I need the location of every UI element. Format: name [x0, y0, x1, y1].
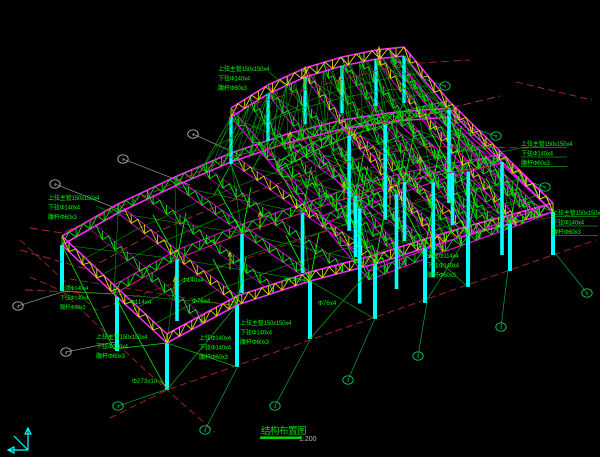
svg-text:下弦Φ140x4: 下弦Φ140x4 [552, 219, 585, 227]
svg-text:下弦Φ140x4: 下弦Φ140x4 [240, 329, 273, 337]
svg-text:下弦Φ140x4: 下弦Φ140x4 [521, 150, 554, 158]
svg-text:Φ114x4: Φ114x4 [130, 299, 152, 306]
svg-text:Φ140x4: Φ140x4 [182, 277, 204, 284]
svg-text:Φ76x4: Φ76x4 [318, 300, 337, 307]
svg-text:腹杆Φ60x3: 腹杆Φ60x3 [218, 84, 247, 92]
svg-text:腹杆Φ60x3: 腹杆Φ60x3 [240, 338, 269, 346]
svg-text:腹杆Φ60x3: 腹杆Φ60x3 [199, 353, 228, 361]
svg-text:腹杆Φ60x3: 腹杆Φ60x3 [96, 352, 125, 360]
svg-text:上弦Φ114x4: 上弦Φ114x4 [427, 252, 459, 260]
svg-text:Φ273x10~: Φ273x10~ [132, 378, 161, 385]
svg-text:上弦主管150x150x4: 上弦主管150x150x4 [521, 140, 573, 148]
svg-text:Φ140x4: Φ140x4 [284, 277, 306, 284]
svg-text:下弦Φ140x4: 下弦Φ140x4 [48, 204, 81, 212]
svg-text:腹杆Φ60x3: 腹杆Φ60x3 [552, 228, 581, 236]
svg-text:下弦Φ140x4: 下弦Φ140x4 [96, 343, 129, 351]
svg-text:腹杆Φ60x3: 腹杆Φ60x3 [521, 159, 550, 167]
svg-text:上弦主管150x150x4: 上弦主管150x150x4 [552, 209, 600, 217]
svg-text:下弦Φ140x4: 下弦Φ140x4 [199, 344, 232, 352]
svg-text:上弦主管150x150x4: 上弦主管150x150x4 [218, 65, 270, 73]
svg-text:上弦主管150x150x4: 上弦主管150x150x4 [240, 319, 292, 327]
svg-text:腹杆Φ60x3: 腹杆Φ60x3 [427, 271, 456, 279]
svg-text:下弦Φ140x4: 下弦Φ140x4 [218, 75, 251, 83]
svg-text:下弦Φ140x4: 下弦Φ140x4 [427, 262, 460, 270]
svg-text:腹杆Φ60x3: 腹杆Φ60x3 [48, 213, 77, 221]
svg-text:上弦主管150x150x4: 上弦主管150x150x4 [48, 194, 100, 202]
svg-text:上弦Φ140x4: 上弦Φ140x4 [199, 334, 232, 342]
svg-text:上弦主管150x150x4: 上弦主管150x150x4 [96, 333, 148, 341]
svg-text:上弦Φ140x4: 上弦Φ140x4 [60, 284, 88, 292]
svg-text:1:200: 1:200 [299, 436, 317, 443]
svg-text:腹杆Φ60x3: 腹杆Φ60x3 [60, 303, 85, 311]
svg-text:Φ76x4: Φ76x4 [192, 298, 211, 305]
svg-text:下弦Φ140x4: 下弦Φ140x4 [60, 294, 88, 302]
